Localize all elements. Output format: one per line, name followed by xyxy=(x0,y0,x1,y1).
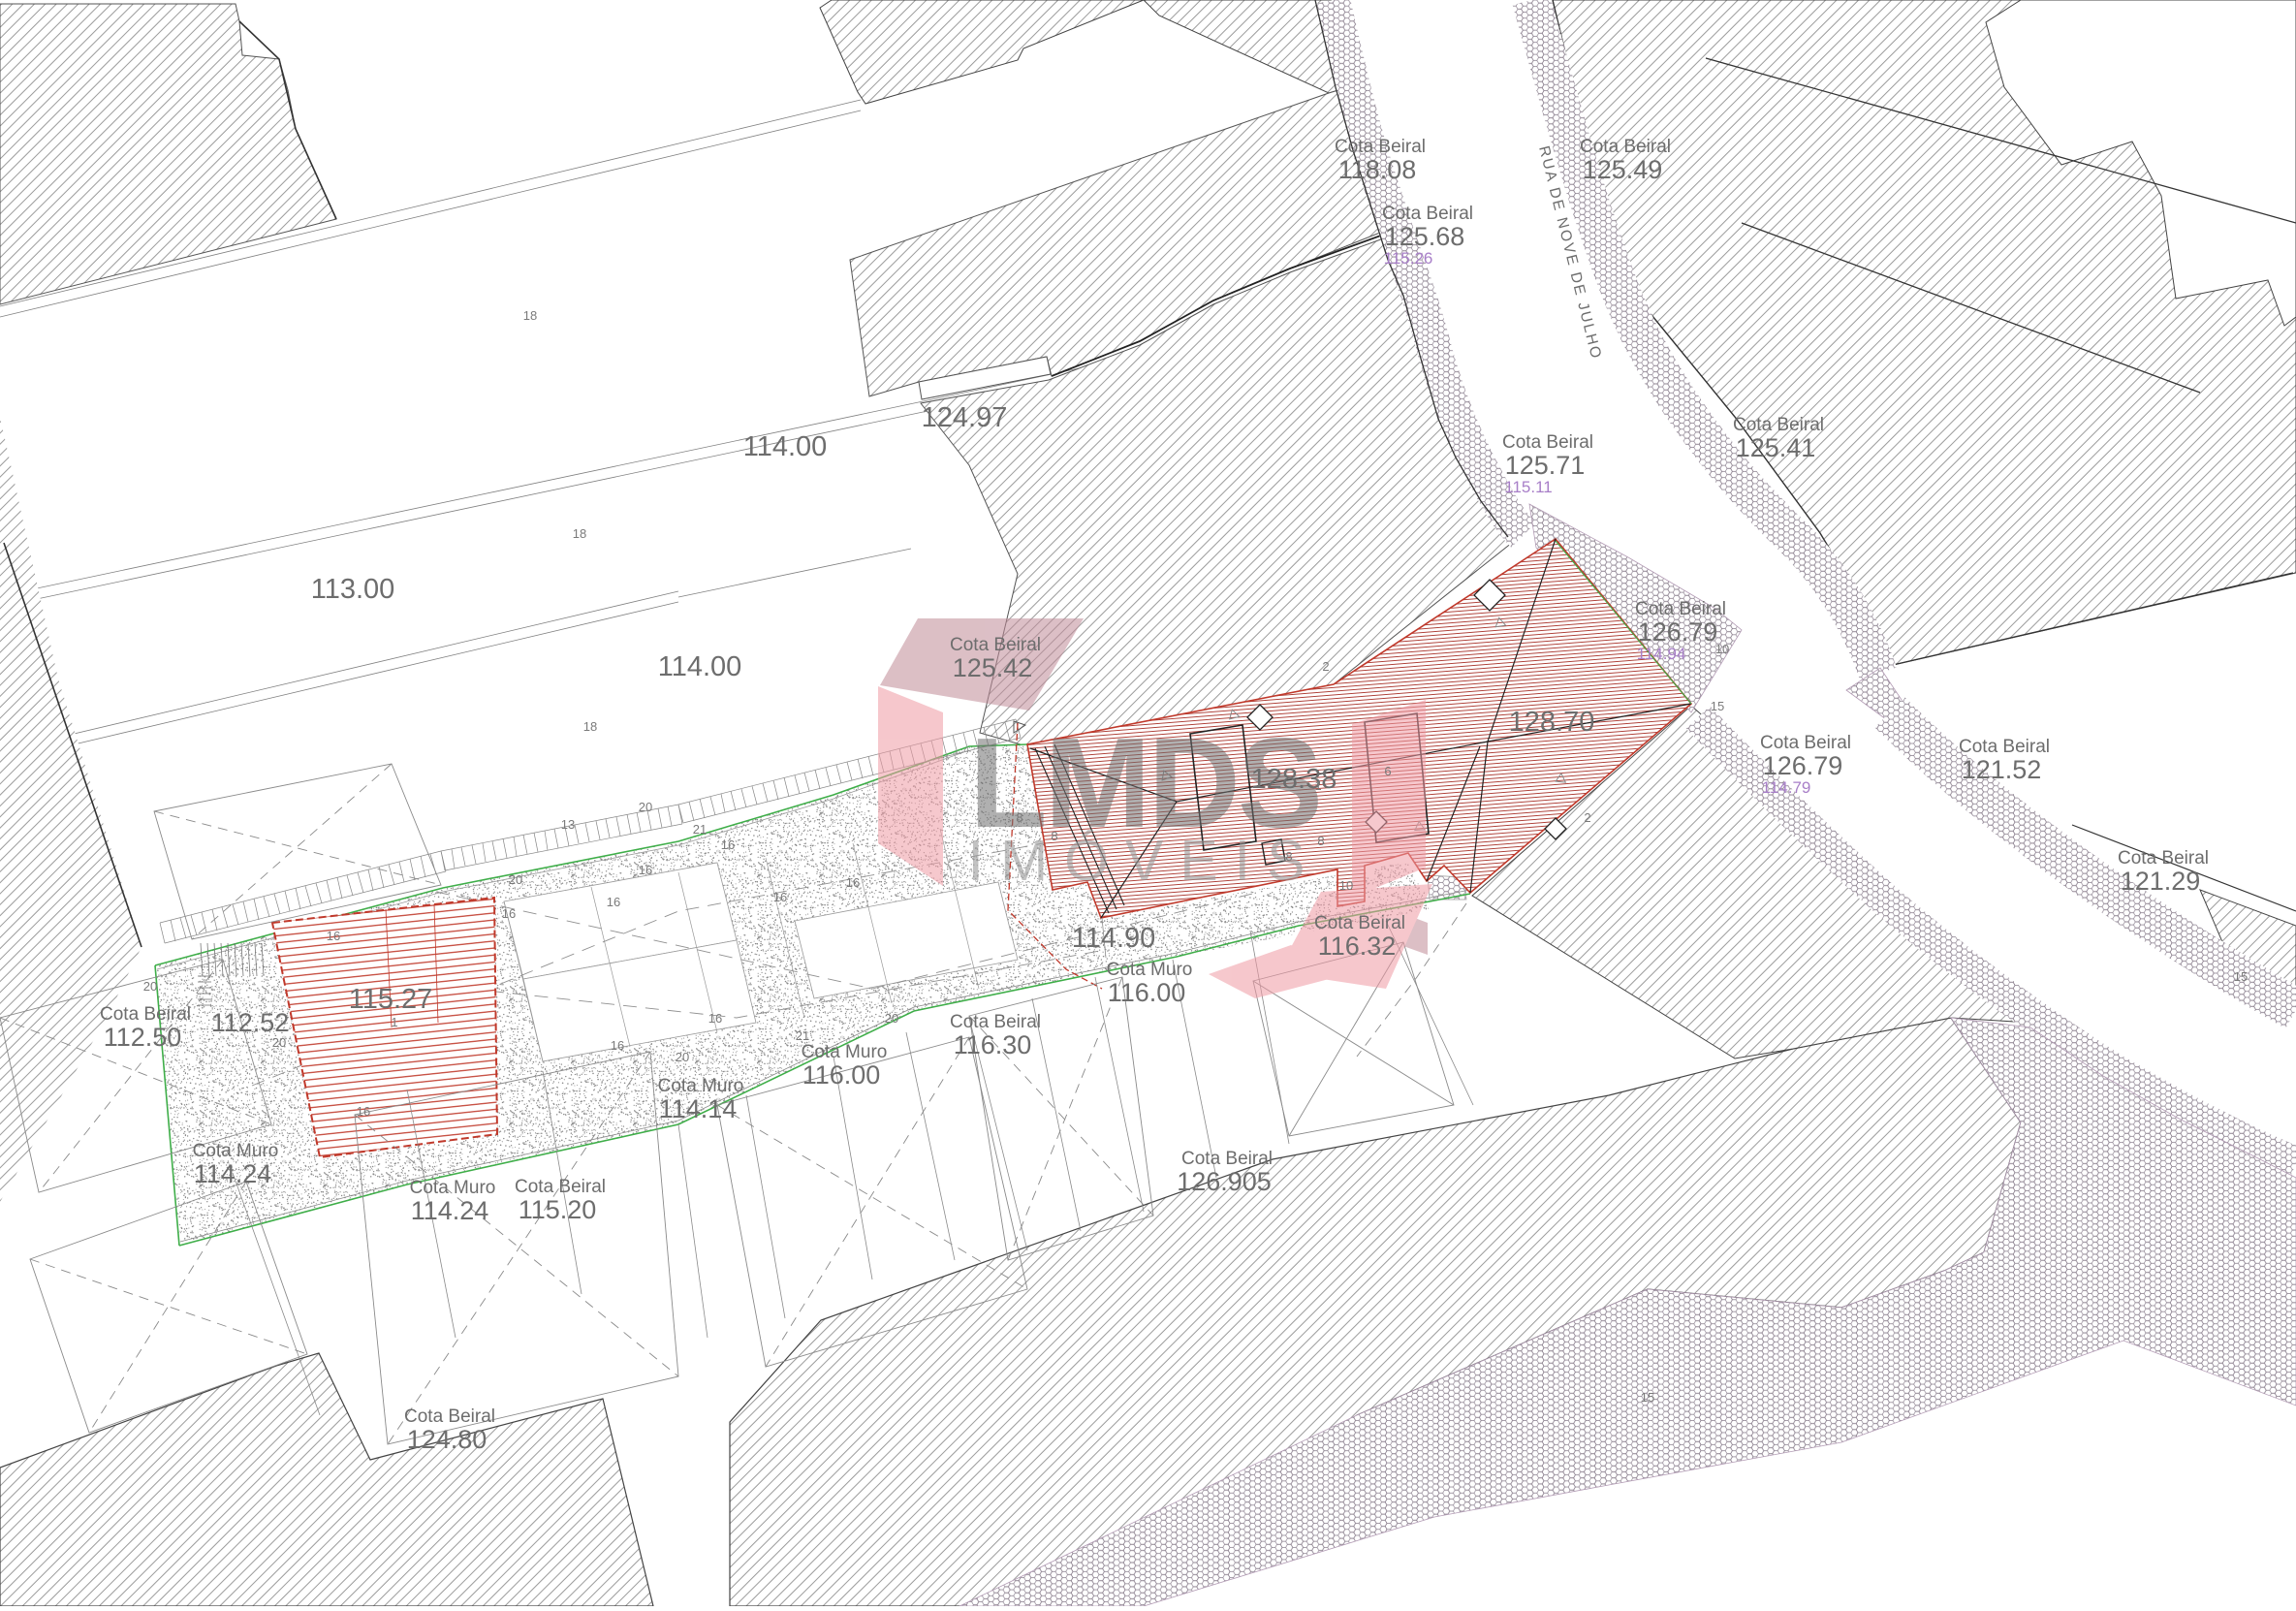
svg-text:20: 20 xyxy=(143,979,157,994)
svg-text:Cota Beiral: Cota Beiral xyxy=(1580,137,1671,157)
svg-text:125.68: 125.68 xyxy=(1385,222,1465,251)
svg-text:Cota Muro: Cota Muro xyxy=(410,1178,496,1198)
svg-text:112.50: 112.50 xyxy=(104,1023,182,1052)
svg-text:16: 16 xyxy=(846,875,860,890)
svg-text:114.94: 114.94 xyxy=(1637,645,1686,663)
svg-text:16: 16 xyxy=(721,837,735,852)
svg-text:2: 2 xyxy=(1322,659,1329,674)
svg-text:21: 21 xyxy=(693,822,707,837)
svg-text:Cota Beiral: Cota Beiral xyxy=(1635,599,1726,619)
svg-text:115.20: 115.20 xyxy=(519,1195,597,1224)
svg-text:125.49: 125.49 xyxy=(1583,155,1663,184)
svg-text:118.08: 118.08 xyxy=(1338,155,1417,184)
svg-text:15: 15 xyxy=(2234,969,2248,984)
svg-text:Cota Muro: Cota Muro xyxy=(658,1076,744,1096)
svg-text:8: 8 xyxy=(1317,834,1324,848)
svg-text:8: 8 xyxy=(1016,810,1022,825)
svg-text:114.79: 114.79 xyxy=(1762,778,1811,797)
svg-text:20: 20 xyxy=(272,1035,286,1050)
svg-text:13: 13 xyxy=(561,817,575,832)
svg-text:Cota Beiral: Cota Beiral xyxy=(950,1012,1041,1032)
svg-text:116.30: 116.30 xyxy=(954,1030,1032,1059)
svg-text:Cota Beiral: Cota Beiral xyxy=(1181,1149,1273,1169)
svg-text:Cota Beiral: Cota Beiral xyxy=(950,635,1041,655)
svg-text:15: 15 xyxy=(1641,1390,1654,1405)
svg-text:124.80: 124.80 xyxy=(407,1425,488,1454)
svg-text:Cota Beiral: Cota Beiral xyxy=(1733,415,1824,435)
svg-text:125.71: 125.71 xyxy=(1505,451,1586,480)
svg-text:Cota Beiral: Cota Beiral xyxy=(2118,848,2209,869)
svg-text:2: 2 xyxy=(1584,810,1590,825)
svg-text:125.41: 125.41 xyxy=(1736,433,1816,462)
svg-text:15: 15 xyxy=(1711,699,1724,713)
svg-text:8: 8 xyxy=(1051,829,1057,843)
svg-text:20: 20 xyxy=(885,1011,898,1026)
svg-text:113.00: 113.00 xyxy=(311,574,395,605)
svg-text:121.29: 121.29 xyxy=(2121,867,2201,896)
svg-text:Cota Muro: Cota Muro xyxy=(1107,960,1193,980)
svg-text:126.905: 126.905 xyxy=(1177,1167,1272,1196)
svg-text:114.90: 114.90 xyxy=(1072,923,1156,954)
svg-text:114.14: 114.14 xyxy=(659,1094,738,1123)
svg-text:Cota Muro: Cota Muro xyxy=(193,1141,279,1161)
svg-text:114.00: 114.00 xyxy=(743,431,828,462)
svg-text:128.38: 128.38 xyxy=(1251,764,1337,795)
svg-text:18: 18 xyxy=(583,719,597,734)
svg-text:Cota Beiral: Cota Beiral xyxy=(1959,737,2050,757)
svg-text:IMÓVEIS: IMÓVEIS xyxy=(968,829,1322,893)
svg-text:16: 16 xyxy=(773,890,787,904)
svg-text:112.52: 112.52 xyxy=(211,1008,290,1037)
svg-text:Cota Beiral: Cota Beiral xyxy=(1382,204,1473,224)
svg-text:8: 8 xyxy=(1285,849,1292,864)
svg-text:16: 16 xyxy=(502,906,516,921)
svg-text:Cota Beiral: Cota Beiral xyxy=(100,1004,191,1025)
svg-text:16: 16 xyxy=(607,895,620,909)
svg-text:126.79: 126.79 xyxy=(1763,751,1843,780)
svg-text:16: 16 xyxy=(327,929,340,943)
svg-text:Cota Beiral: Cota Beiral xyxy=(1760,733,1851,753)
svg-text:1: 1 xyxy=(1314,778,1321,793)
svg-text:Cota Beiral: Cota Beiral xyxy=(515,1177,606,1197)
svg-text:121.52: 121.52 xyxy=(1962,755,2042,784)
svg-text:20: 20 xyxy=(509,872,522,887)
svg-text:125.42: 125.42 xyxy=(953,653,1033,682)
svg-text:115.27: 115.27 xyxy=(349,984,433,1015)
svg-text:Cota Beiral: Cota Beiral xyxy=(1314,913,1405,933)
svg-text:115.11: 115.11 xyxy=(1504,478,1552,496)
svg-text:Cota Muro: Cota Muro xyxy=(802,1042,888,1062)
svg-text:18: 18 xyxy=(573,526,586,541)
svg-text:126.79: 126.79 xyxy=(1638,617,1718,647)
svg-text:20: 20 xyxy=(676,1050,689,1064)
svg-text:16: 16 xyxy=(357,1104,370,1119)
svg-text:18: 18 xyxy=(523,308,537,323)
svg-text:1: 1 xyxy=(391,1015,397,1029)
svg-text:16: 16 xyxy=(639,863,652,877)
svg-text:114.00: 114.00 xyxy=(658,651,742,682)
svg-text:6: 6 xyxy=(1384,764,1391,778)
svg-text:114.24: 114.24 xyxy=(194,1159,272,1188)
svg-text:Cota Beiral: Cota Beiral xyxy=(404,1406,495,1427)
svg-text:16: 16 xyxy=(611,1038,624,1053)
svg-text:10: 10 xyxy=(1715,642,1729,656)
svg-text:16: 16 xyxy=(708,1011,722,1026)
svg-text:115.26: 115.26 xyxy=(1384,249,1433,268)
svg-text:10: 10 xyxy=(1339,878,1353,893)
svg-text:128.70: 128.70 xyxy=(1509,707,1595,738)
svg-text:114.24: 114.24 xyxy=(411,1196,489,1225)
svg-text:21: 21 xyxy=(796,1028,809,1043)
svg-text:116.32: 116.32 xyxy=(1318,932,1397,961)
svg-text:116.00: 116.00 xyxy=(1108,978,1186,1007)
svg-text:116.00: 116.00 xyxy=(802,1060,881,1090)
svg-text:Cota Beiral: Cota Beiral xyxy=(1502,432,1593,453)
svg-text:20: 20 xyxy=(639,800,652,814)
svg-text:Cota Beiral: Cota Beiral xyxy=(1335,137,1426,157)
svg-text:124.97: 124.97 xyxy=(922,402,1008,433)
